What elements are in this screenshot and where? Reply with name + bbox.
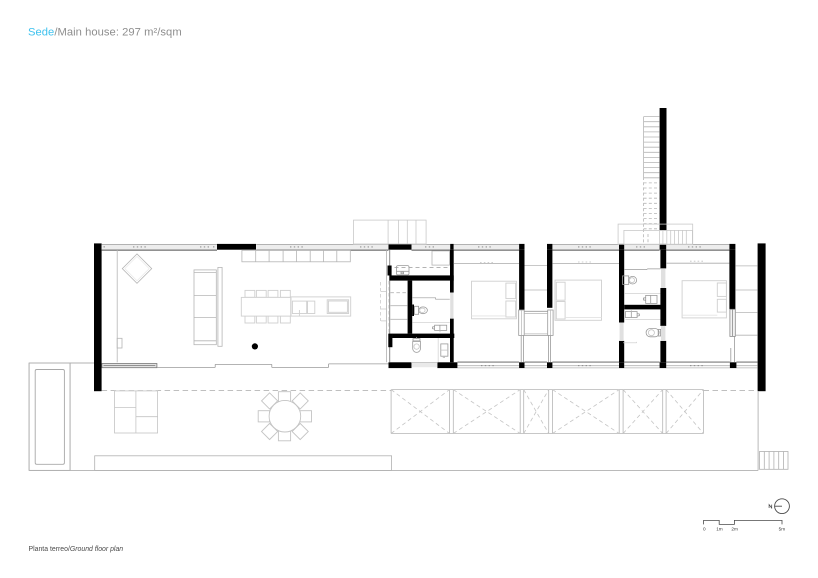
svg-text:5m: 5m	[779, 527, 786, 532]
svg-text:1m: 1m	[716, 527, 723, 532]
svg-text:0: 0	[703, 527, 706, 532]
svg-text:Planta terreo/Ground floor pla: Planta terreo/Ground floor plan	[29, 546, 124, 553]
svg-text:Sede/Main house: 297 m²/sqm: Sede/Main house: 297 m²/sqm	[28, 27, 182, 39]
svg-text:2m: 2m	[731, 527, 738, 532]
